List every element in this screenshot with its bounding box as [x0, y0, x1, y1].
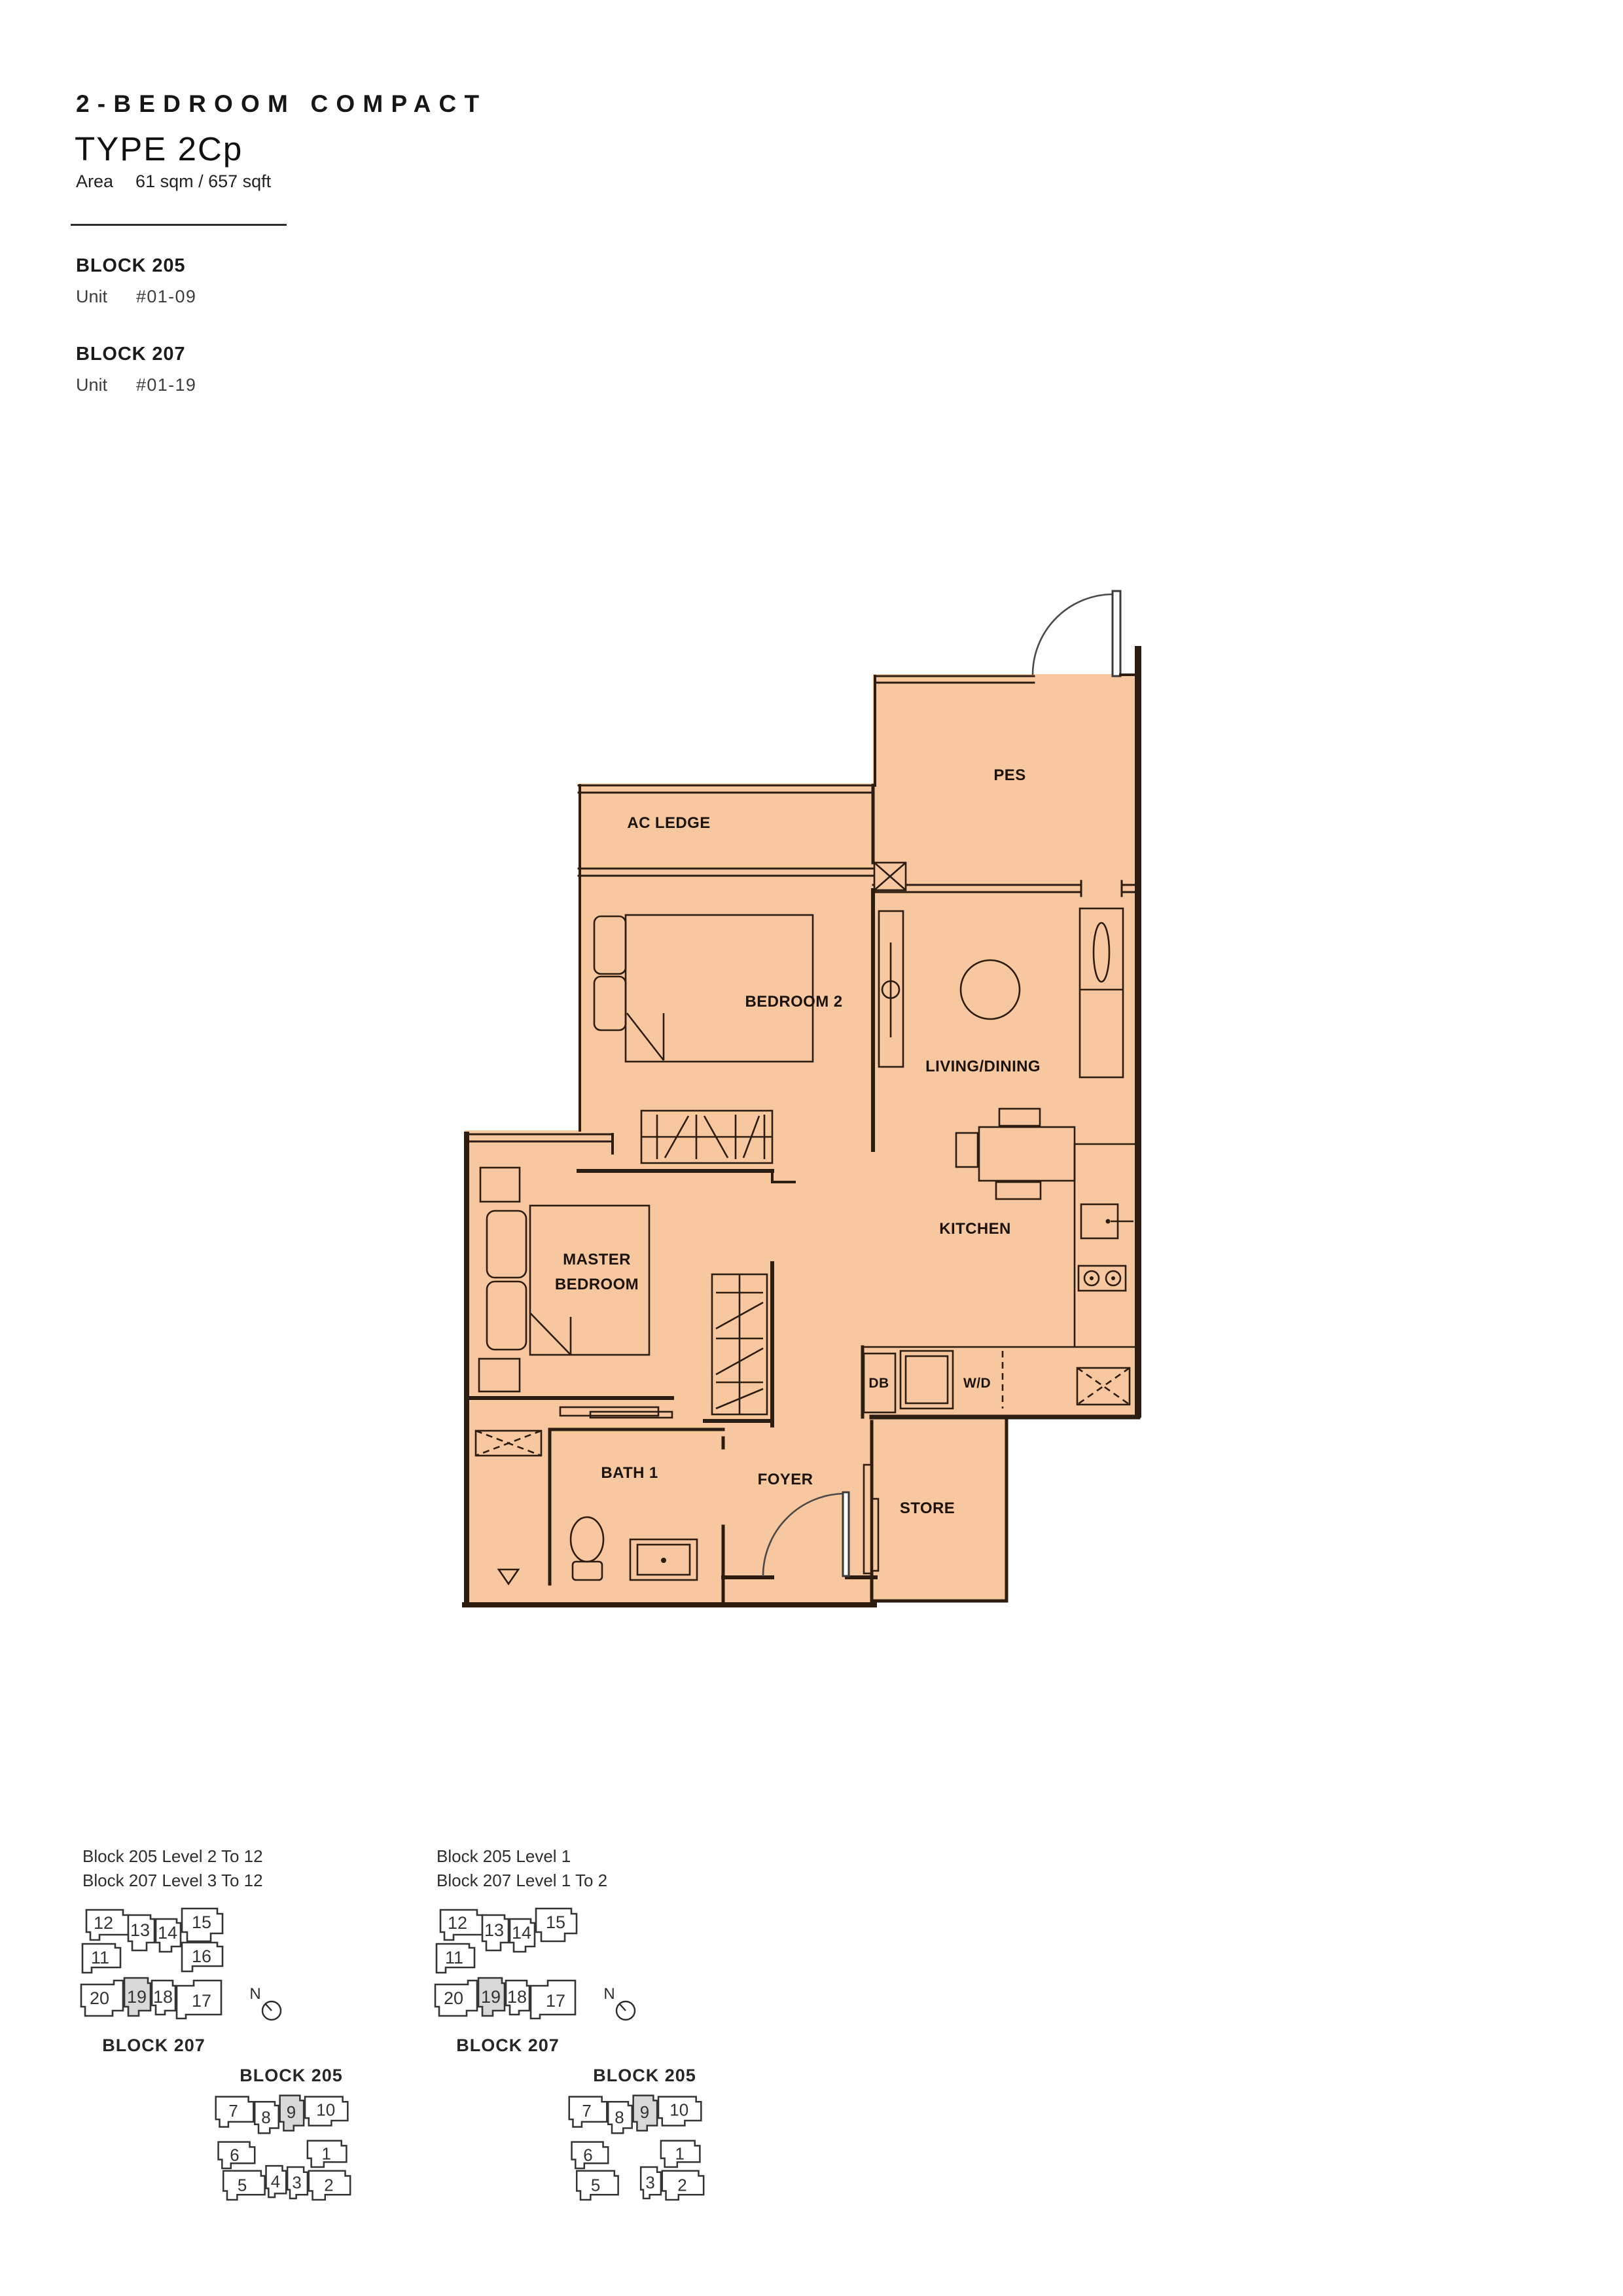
keyplan-unit-label: 5: [591, 2177, 600, 2195]
keyplan-left-block207-caption: BLOCK 207: [88, 2036, 219, 2056]
keyplan-unit-label: 13: [130, 1920, 150, 1940]
keyplan-unit-label: 12: [448, 1913, 467, 1933]
keyplan-unit-label: 11: [445, 1948, 463, 1967]
area-value: 61 sqm / 657 sqft: [135, 171, 271, 191]
room-label-ac-ledge: AC LEDGE: [627, 814, 710, 832]
keyplan-right-block205: 7 8 9 10 6 1 5 3 2: [562, 2089, 725, 2215]
keyplan-unit-label: 8: [615, 2109, 624, 2127]
block-205-unit-row: Unit#01-09: [76, 287, 196, 307]
keyplan-unit-label: 9: [287, 2104, 296, 2122]
room-label-foyer: FOYER: [758, 1471, 813, 1488]
compass-n-label: N: [249, 1985, 260, 2003]
keyplan-unit-label: 19: [127, 1987, 147, 2007]
keyplan-unit-label: 15: [192, 1912, 211, 1932]
room-label-bath1: BATH 1: [601, 1464, 658, 1482]
keyplan-unit-label: 14: [512, 1923, 531, 1943]
level-line: Block 207 Level 1 To 2: [437, 1869, 607, 1893]
room-label-master-1: MASTER: [563, 1251, 631, 1268]
level-line: Block 205 Level 2 To 12: [82, 1844, 263, 1869]
keyplan-unit-label: 9: [640, 2104, 649, 2122]
keyplan-left-block205-caption: BLOCK 205: [226, 2066, 357, 2086]
keyplan-unit-label: 20: [90, 1988, 109, 2008]
keyplan-unit-label: 17: [546, 1991, 565, 2011]
keyplan-unit-label: 8: [261, 2109, 270, 2127]
keyplan-unit-label: 2: [677, 2177, 687, 2195]
keyplan-unit-label: 12: [94, 1913, 113, 1933]
keyplan-unit-label: 14: [158, 1923, 177, 1943]
level-line: Block 207 Level 3 To 12: [82, 1869, 263, 1893]
keyplan-right-block207: 12 13 14 15 11 20 19 18 17 N: [431, 1899, 647, 2030]
area-line: Area61 sqm / 657 sqft: [76, 171, 271, 192]
keyplan-left-levels: Block 205 Level 2 To 12 Block 207 Level …: [82, 1844, 263, 1893]
area-label: Area: [76, 171, 113, 191]
room-label-kitchen: KITCHEN: [939, 1220, 1010, 1238]
room-label-living-dining: LIVING/DINING: [925, 1058, 1041, 1075]
keyplan-right-block207-caption: BLOCK 207: [442, 2036, 573, 2056]
block-207-heading: BLOCK 207: [76, 344, 185, 365]
keyplan-unit-label: 3: [292, 2174, 301, 2193]
divider-rule: [71, 224, 287, 226]
keyplan-unit-label: 18: [153, 1987, 173, 2007]
keyplan-left-block207: 12 13 14 15 11 16 20 19 18 17 N: [77, 1899, 293, 2030]
keyplan-unit-label: 7: [228, 2102, 238, 2121]
unit-value: #01-09: [136, 287, 196, 306]
keyplan-unit-label: 1: [675, 2145, 684, 2164]
floorplan-drawing: PES AC LEDGE BEDROOM 2 LIVING/DINING MAS…: [432, 563, 1165, 1636]
room-label-master-2: BEDROOM: [555, 1276, 639, 1293]
keyplan-unit-label: 18: [507, 1987, 527, 2007]
north-compass: N: [603, 1985, 635, 2020]
keyplan-units: 12 13 14 15 11 20 19 18 17: [435, 1909, 577, 2018]
keyplan-unit-label: 17: [192, 1991, 211, 2011]
block-207-unit-row: Unit#01-19: [76, 375, 196, 395]
keyplan-unit-label: 16: [192, 1946, 211, 1966]
keyplan-unit-label: 13: [484, 1920, 504, 1940]
compass-n-label: N: [603, 1985, 615, 2003]
room-label-db: DB: [868, 1376, 889, 1391]
keyplan-unit-label: 2: [324, 2177, 333, 2195]
keyplan-units: 7 8 9 10 6 1 5 3 2: [569, 2096, 704, 2200]
keyplan-unit-label: 1: [321, 2145, 330, 2164]
keyplan-unit-label: 15: [546, 1912, 565, 1932]
keyplan-units: 12 13 14 15 11 16 20 19 18 17: [81, 1909, 223, 2018]
keyplan-unit-label: 19: [481, 1987, 501, 2007]
room-label-wd: W/D: [963, 1376, 991, 1391]
keyplan-unit-label: 4: [271, 2173, 280, 2191]
keyplan-unit-label: 10: [669, 2101, 688, 2119]
unit-type-title: TYPE 2Cp: [75, 130, 243, 168]
keyplan-unit-label: 3: [645, 2174, 654, 2193]
keyplan-unit-label: 10: [316, 2101, 335, 2119]
keyplan-left-block205: 7 8 9 10 6 1 5 4 3 2: [208, 2089, 372, 2215]
room-label-store: STORE: [900, 1499, 955, 1517]
room-label-bedroom2: BEDROOM 2: [745, 993, 843, 1011]
keyplan-unit-label: 11: [91, 1948, 109, 1967]
keyplan-unit-label: 7: [582, 2102, 591, 2121]
unit-label: Unit: [76, 287, 107, 306]
keyplan-unit-label: 20: [444, 1988, 463, 2008]
block-205-heading: BLOCK 205: [76, 255, 185, 277]
unit-label: Unit: [76, 375, 107, 395]
north-compass: N: [249, 1985, 281, 2020]
keyplan-unit-label: 6: [230, 2146, 239, 2164]
keyplan-right-levels: Block 205 Level 1 Block 207 Level 1 To 2: [437, 1844, 607, 1893]
floorplan-page: 2-BEDROOM COMPACT TYPE 2Cp Area61 sqm / …: [0, 0, 1623, 2296]
unit-value: #01-19: [136, 375, 196, 395]
room-label-pes: PES: [993, 766, 1026, 784]
keyplan-units: 7 8 9 10 6 1 5 4 3 2: [216, 2096, 350, 2200]
keyplan-unit-label: 6: [583, 2146, 592, 2164]
category-title: 2-BEDROOM COMPACT: [76, 90, 487, 118]
level-line: Block 205 Level 1: [437, 1844, 607, 1869]
keyplan-unit-label: 5: [238, 2177, 247, 2195]
keyplan-right-block205-caption: BLOCK 205: [579, 2066, 710, 2086]
